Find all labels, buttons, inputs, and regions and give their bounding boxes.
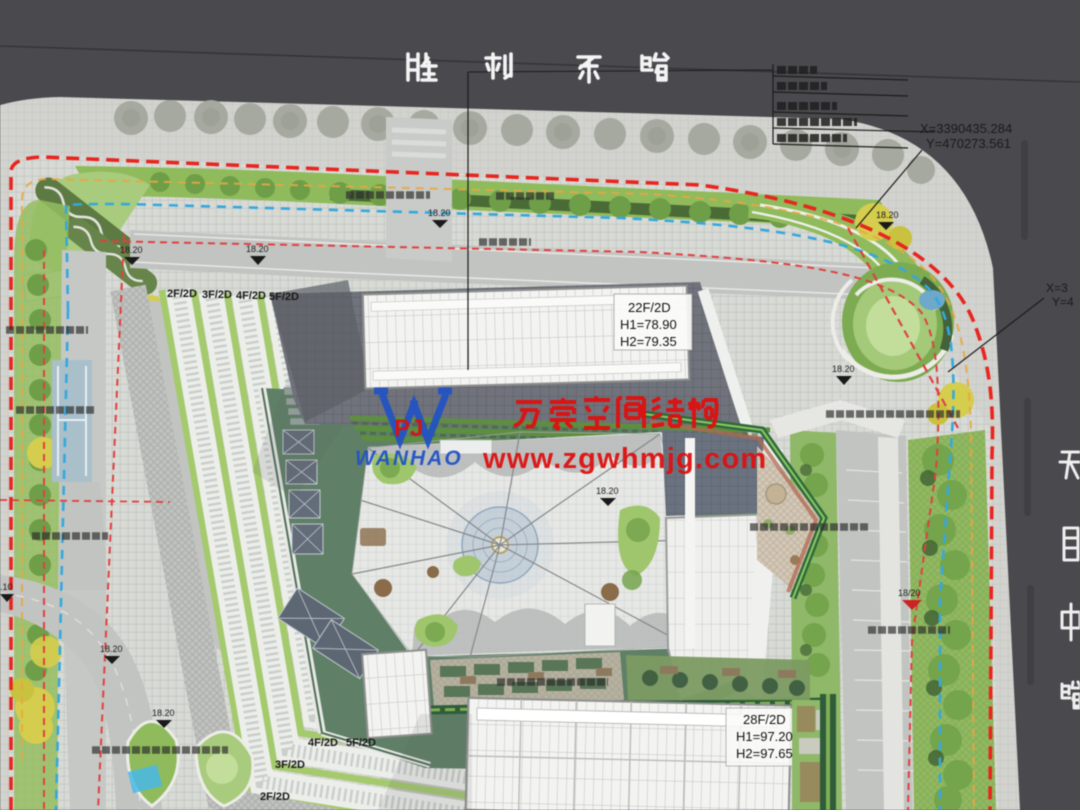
svg-text:X=3390435.284: X=3390435.284: [920, 121, 1012, 136]
svg-text:28F/2D: 28F/2D: [743, 712, 786, 727]
svg-text:H2=97.65: H2=97.65: [736, 746, 793, 761]
svg-text:PJ: PJ: [394, 415, 423, 442]
svg-text:www.zgwhmjg.com: www.zgwhmjg.com: [482, 443, 767, 475]
svg-text:22F/2D: 22F/2D: [628, 300, 671, 315]
svg-text:WANHAO: WANHAO: [355, 447, 463, 470]
svg-text:18.20: 18.20: [120, 245, 143, 255]
svg-text:5F/2D: 5F/2D: [346, 737, 376, 749]
svg-text:3F/2D: 3F/2D: [275, 759, 305, 771]
svg-text:X=3: X=3: [1046, 281, 1068, 295]
svg-text:.10: .10: [0, 582, 13, 592]
svg-text:18/20: 18/20: [898, 588, 921, 598]
svg-text:4F/2D: 4F/2D: [308, 737, 338, 749]
svg-text:18.20: 18.20: [596, 486, 619, 496]
svg-text:H2=79.35: H2=79.35: [620, 334, 677, 349]
svg-text:18.20: 18.20: [246, 244, 269, 254]
svg-text:2F/2D: 2F/2D: [167, 288, 197, 300]
svg-text:2F/2D: 2F/2D: [260, 791, 290, 803]
svg-text:18.20: 18.20: [832, 364, 855, 374]
svg-text:18.20: 18.20: [876, 210, 899, 220]
svg-text:H1=97.20: H1=97.20: [736, 729, 793, 744]
svg-text:Y=4: Y=4: [1052, 295, 1074, 309]
svg-text:18.20: 18.20: [100, 644, 123, 654]
svg-text:Y=470273.561: Y=470273.561: [926, 136, 1011, 151]
svg-text:18.20: 18.20: [152, 708, 175, 718]
svg-text:5F/2D: 5F/2D: [269, 291, 299, 303]
svg-text:3F/2D: 3F/2D: [202, 289, 232, 301]
svg-text:4F/2D: 4F/2D: [236, 290, 266, 302]
svg-text:H1=78.90: H1=78.90: [620, 317, 677, 332]
svg-text:18.20: 18.20: [428, 208, 451, 218]
